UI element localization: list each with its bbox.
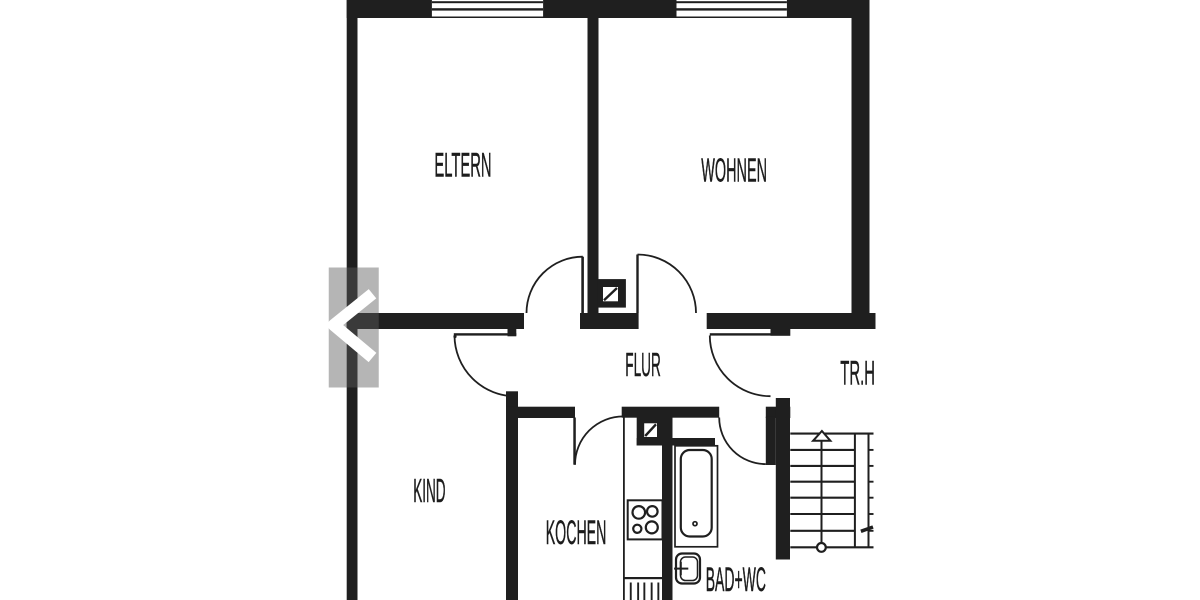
svg-text:ELTERN: ELTERN [434, 147, 491, 185]
svg-text:BAD+WC: BAD+WC [706, 561, 766, 599]
svg-text:KIND: KIND [413, 473, 445, 510]
svg-text:FLUR: FLUR [625, 347, 661, 384]
svg-text:TR.H: TR.H [840, 355, 875, 393]
svg-text:WOHNEN: WOHNEN [701, 152, 767, 189]
svg-text:KOCHEN: KOCHEN [546, 514, 607, 552]
